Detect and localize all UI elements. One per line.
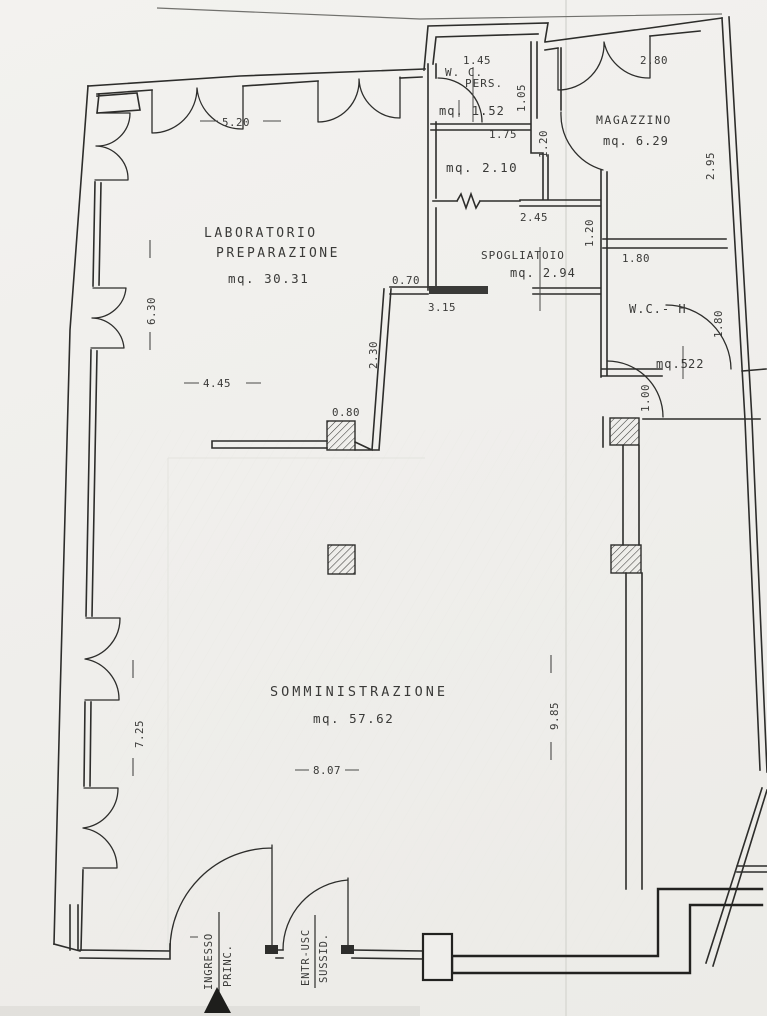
spogliatoio-thick-wall <box>429 286 488 294</box>
dim-somm-bottom: 8.07 <box>313 764 341 777</box>
room-area-somministrazione: mq. 57.62 <box>313 711 394 726</box>
pillar-right-upper <box>610 418 639 445</box>
dim-magazzino-depth: 2.95 <box>704 152 717 180</box>
sidewalk-edge-line <box>157 8 722 19</box>
room-area-laboratorio: mq. 30.31 <box>228 271 309 286</box>
entrance-secondary-label-line1: ENTR-USC <box>300 929 312 986</box>
top-wall <box>88 18 722 94</box>
dim-pillar: 0.80 <box>332 406 360 419</box>
dim-lab-left: 6.30 <box>145 297 158 325</box>
dim-somm-left: 7.25 <box>133 720 146 748</box>
floor-plan-scan: LABORATORIO PREPARAZIONE mq. 30.31 W. C.… <box>0 0 767 1016</box>
dim-spogliatoio-wall: 3.15 <box>428 301 456 314</box>
dim-lab-bottom: 4.45 <box>203 377 231 390</box>
dim-spogliatoio-width: 2.45 <box>520 211 548 224</box>
pillar-right-lower <box>611 545 641 573</box>
room-label-wc-h: W.C.- H <box>629 302 687 316</box>
dim-pillar-wall: 2.30 <box>367 341 380 369</box>
room-label-wc-pers-line2: PERS. <box>465 77 503 90</box>
secondary-door-hinge-block <box>341 945 354 954</box>
pillar-center-left <box>327 421 355 450</box>
entrance-main-label-line1: INGRESSO <box>203 933 215 990</box>
dim-wc-h-door: 1.00 <box>639 384 652 412</box>
main-door-hinge-block <box>265 945 278 954</box>
room-area-wc-pers: mq. 1.52 <box>439 104 505 118</box>
entrance-main-label-line2: PRINC. <box>222 944 234 987</box>
dim-somm-right: 9.85 <box>548 702 561 730</box>
dim-magazzino-width: 2.80 <box>640 54 668 67</box>
dim-wc-pers-depth: 1.05 <box>515 84 528 112</box>
entrance-secondary-label-line2: SUSSID. <box>318 933 330 983</box>
bottom-wall-pier <box>423 934 452 980</box>
room-label-somministrazione: SOMMINISTRAZIONE <box>270 684 448 700</box>
room-area-spogliatoio: mq. 2.94 <box>510 266 576 280</box>
room-area-wc-h-prefix: mq.5 <box>656 357 689 371</box>
room-area-magazzino: mq. 6.29 <box>603 134 669 148</box>
pillar-freestanding <box>328 545 355 574</box>
dim-wc-pers-width: 1.45 <box>463 54 491 67</box>
dim-lab-top: 5.20 <box>222 116 250 129</box>
room-area-anteroom: mq. 2.10 <box>446 160 518 175</box>
floor-plan-drawing: LABORATORIO PREPARAZIONE mq. 30.31 W. C.… <box>0 0 767 1016</box>
room-label-spogliatoio: SPOGLIATOIO <box>481 249 565 262</box>
dim-niche: 0.70 <box>392 274 420 287</box>
dim-wc-h-width: 1.80 <box>622 252 650 265</box>
room-label-laboratorio-line2: PREPARAZIONE <box>216 246 340 261</box>
room-label-laboratorio-line1: LABORATORIO <box>204 226 318 241</box>
room-area-wc-h-suffix: 22 <box>688 357 704 371</box>
room-label-magazzino: MAGAZZINO <box>596 113 672 127</box>
dim-anteroom-depth: 1.20 <box>537 130 550 158</box>
dim-wc-h-depth: 1.80 <box>712 310 725 338</box>
dim-spogliatoio-depth: 1.20 <box>583 219 596 247</box>
dim-anteroom-width: 1.75 <box>489 128 517 141</box>
